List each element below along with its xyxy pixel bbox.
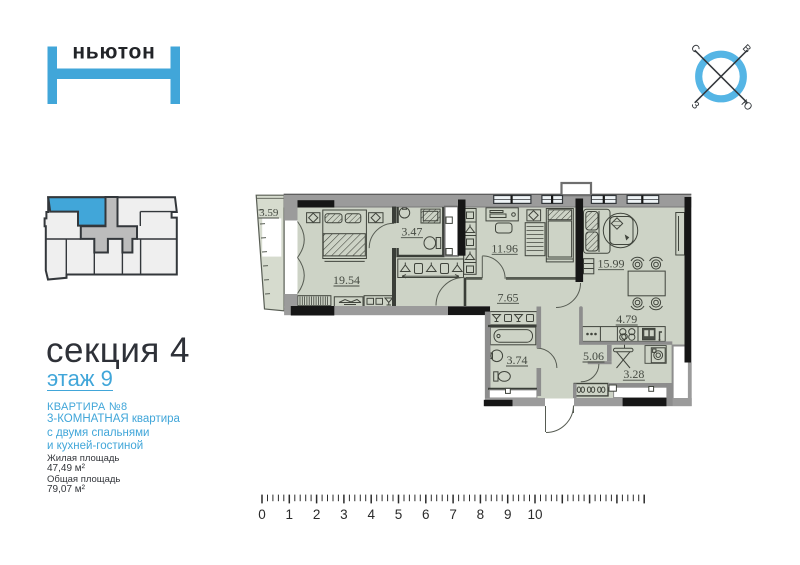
svg-text:9: 9 bbox=[504, 507, 512, 522]
svg-text:3.28: 3.28 bbox=[623, 367, 644, 381]
svg-text:5.06: 5.06 bbox=[583, 349, 604, 363]
svg-text:6: 6 bbox=[422, 507, 430, 522]
svg-text:2: 2 bbox=[313, 507, 321, 522]
svg-text:С: С bbox=[688, 42, 702, 56]
svg-text:11.96: 11.96 bbox=[491, 241, 518, 255]
svg-text:4: 4 bbox=[367, 507, 375, 522]
svg-text:Ю: Ю bbox=[739, 97, 755, 113]
svg-text:1: 1 bbox=[286, 507, 294, 522]
svg-text:10: 10 bbox=[527, 507, 542, 522]
svg-text:8: 8 bbox=[477, 507, 485, 522]
svg-text:В: В bbox=[740, 42, 753, 55]
svg-text:4.79: 4.79 bbox=[616, 312, 637, 326]
svg-text:3.47: 3.47 bbox=[401, 225, 422, 239]
svg-text:З: З bbox=[689, 99, 702, 112]
svg-text:19.54: 19.54 bbox=[333, 273, 360, 287]
svg-text:0: 0 bbox=[258, 507, 266, 522]
svg-text:5: 5 bbox=[395, 507, 403, 522]
svg-text:3.74: 3.74 bbox=[507, 353, 528, 367]
svg-text:3: 3 bbox=[340, 507, 348, 522]
svg-text:3.59: 3.59 bbox=[259, 207, 279, 219]
svg-text:15.99: 15.99 bbox=[598, 257, 625, 271]
svg-text:7: 7 bbox=[449, 507, 457, 522]
svg-text:7.65: 7.65 bbox=[498, 290, 519, 304]
